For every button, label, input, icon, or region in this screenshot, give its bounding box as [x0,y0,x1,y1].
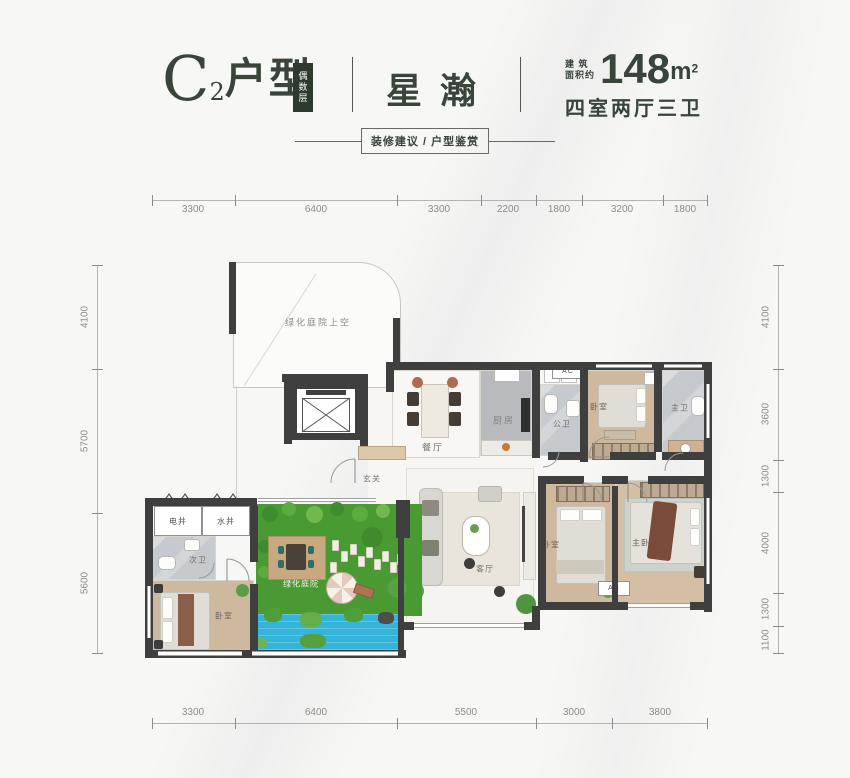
pillow [162,621,173,643]
bedroom-mid-door-arc [582,482,603,503]
pillow [162,597,173,619]
window [628,603,690,608]
pillow [690,508,700,526]
void-label: 绿化庭院上空 [285,316,351,329]
toilet [158,556,176,570]
plant [236,584,249,597]
foyer-label: 玄关 [363,474,381,485]
bedroom-bottom-label: 卧室 [215,611,233,622]
bush [330,502,344,516]
wall [524,622,540,630]
bath-sink [184,539,200,551]
public-bath-door-arc [542,450,560,468]
void-diagonal-line [240,270,320,388]
window [596,364,652,368]
master-bath-label: 主卫 [671,403,689,414]
pillow [636,388,646,404]
pool-plant [264,608,282,622]
pillow [560,509,580,521]
sofa-cushion [422,540,439,556]
dining-stool [447,377,458,388]
kitchen-fridge [521,398,530,432]
bush [282,502,296,516]
bed-runner [178,594,194,646]
wall [282,374,368,382]
bush [306,506,323,523]
wall [360,374,368,446]
corridor-edge-line [236,386,237,500]
bush [376,504,390,518]
dining-chair [449,392,461,406]
floorplan-page: { "header": { "unit_letter": "C", "unit_… [0,0,850,778]
wall [250,584,258,658]
bedroom-top-label: 卧室 [590,402,608,413]
public-bath-label: 公卫 [553,419,571,430]
wall [532,366,540,458]
water-shaft: 水井 [202,506,250,536]
wall [602,476,628,484]
water-shaft-label: 水井 [217,516,235,527]
window [414,623,526,628]
master-bath-door-arc [664,452,684,472]
deck-table [286,544,306,570]
dining-chair [407,412,419,426]
toilet [691,396,705,416]
window [258,498,376,502]
dining-table [421,384,449,438]
foyer-door-arc [330,458,356,484]
floorplan: 绿化庭院上空 餐厅 厨房 公卫 AC 卧室 主卫 [0,0,850,778]
electric-shaft: 电井 [154,506,202,536]
deck-chair [308,560,314,568]
toilet [544,394,558,414]
window [147,586,151,638]
window [706,384,710,438]
nightstand [154,584,163,593]
wall [690,602,712,610]
dining-stool [412,377,423,388]
deck-chair [278,560,284,568]
wall [398,538,404,650]
pool-plant [300,612,322,627]
pillow [690,528,700,546]
bush [262,506,278,522]
tv [522,506,525,562]
wall [546,602,628,610]
master-bedroom-label: 主卧 [632,538,650,549]
bedroom-top-door-arc [588,436,610,458]
armchair [478,486,502,502]
electric-shaft-label: 电井 [169,516,187,527]
dining-chair [449,412,461,426]
living-label: 客厅 [476,564,494,575]
kitchen-label: 厨房 [493,414,515,427]
window [664,364,702,368]
pool-plant [300,634,326,648]
window [158,651,242,656]
wall [654,366,662,452]
dining-label: 餐厅 [422,441,444,454]
kitchen-bowl [502,443,510,451]
wall [284,374,292,444]
pillow [582,509,602,521]
table-plant [470,524,479,533]
nightstand [154,640,163,649]
kitchen-sink [494,368,520,382]
wall [612,486,618,604]
wall [396,500,410,538]
bedroom-bottom-door-arc [226,558,250,582]
second-bath-door-arc [198,562,215,579]
bath-sink [566,400,580,417]
wall [386,362,394,392]
wall [145,498,257,506]
wall [393,318,400,366]
pouf [494,586,505,597]
elevator-x-icon [302,398,350,432]
master-bedroom-door-arc [627,482,648,503]
wall [250,506,258,562]
wall [229,262,236,334]
deck-chair [308,546,314,554]
sofa-cushion [422,500,439,516]
coffee-table [462,516,490,556]
wardrobe-master [640,482,704,498]
shoe-cabinet [358,446,406,460]
courtyard-label: 绿化庭院 [283,579,319,590]
pouf [464,558,475,569]
window [706,498,710,584]
window [252,651,398,656]
elevator-door-bar [306,390,346,395]
bed-throw [556,560,604,574]
deck-chair [278,546,284,554]
wall [648,476,712,484]
pool-rock [378,612,394,624]
wall [538,476,546,610]
bush [352,506,368,522]
wall [610,452,656,460]
pillow [636,406,646,422]
dining-chair [407,392,419,406]
pool-plant [344,608,363,622]
wall [580,366,588,462]
